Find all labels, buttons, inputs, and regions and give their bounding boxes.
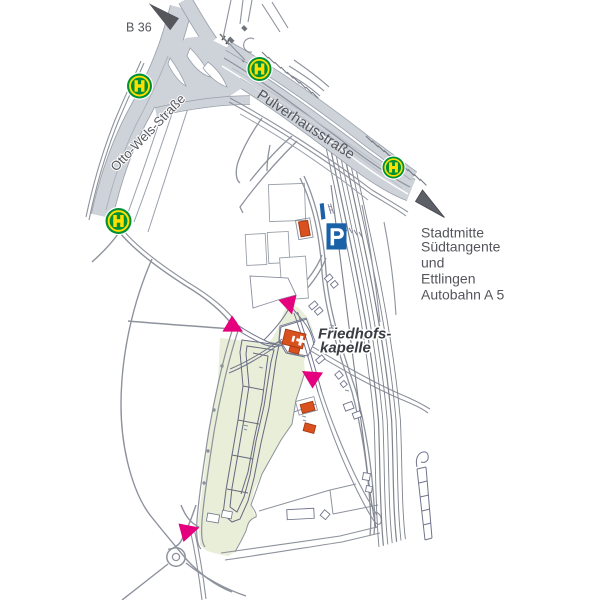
svg-text:B 36: B 36 bbox=[126, 21, 152, 35]
svg-text:Ettlingen: Ettlingen bbox=[421, 271, 475, 287]
svg-text:Südtangente: Südtangente bbox=[421, 239, 501, 255]
svg-text:Autobahn A 5: Autobahn A 5 bbox=[421, 287, 505, 303]
svg-text:und: und bbox=[421, 255, 444, 271]
svg-text:kapelle: kapelle bbox=[320, 340, 371, 357]
